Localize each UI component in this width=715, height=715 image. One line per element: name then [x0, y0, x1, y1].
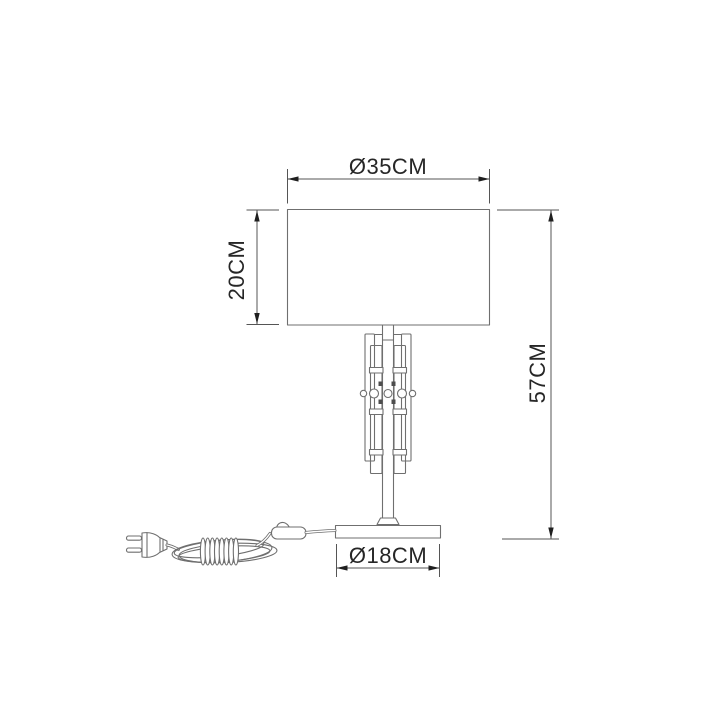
stem-knobs: [360, 389, 415, 398]
power-cord: [127, 522, 336, 565]
cord-coil: [171, 536, 277, 566]
inline-switch: [272, 522, 307, 539]
dimension-total-height: 57CM: [497, 210, 559, 539]
lamp-base: [336, 526, 441, 539]
switch-body: [272, 527, 307, 539]
dimension-shade-diameter: Ø35CM: [288, 154, 490, 204]
label-shade-height: 20CM: [224, 240, 249, 301]
label-total-height: 57CM: [525, 343, 550, 404]
lamp-stem: [360, 325, 415, 525]
plug-prong-bottom: [127, 548, 142, 552]
plug-prong-top: [127, 536, 142, 540]
cord-coil-wraps: [200, 538, 238, 565]
dimension-shade-height: 20CM: [224, 210, 279, 325]
stem-collar: [377, 518, 399, 525]
dimension-base-diameter: Ø18CM: [337, 543, 440, 577]
lamp-shade: [288, 210, 490, 326]
stem-rod: [383, 325, 394, 518]
label-base-diameter: Ø18CM: [349, 543, 427, 568]
dimension-drawing: Ø35CM 20CM 57CM Ø18CM: [0, 0, 715, 715]
lamp-diagram-canvas: Ø35CM 20CM 57CM Ø18CM: [0, 0, 715, 715]
label-shade-diameter: Ø35CM: [349, 154, 427, 179]
